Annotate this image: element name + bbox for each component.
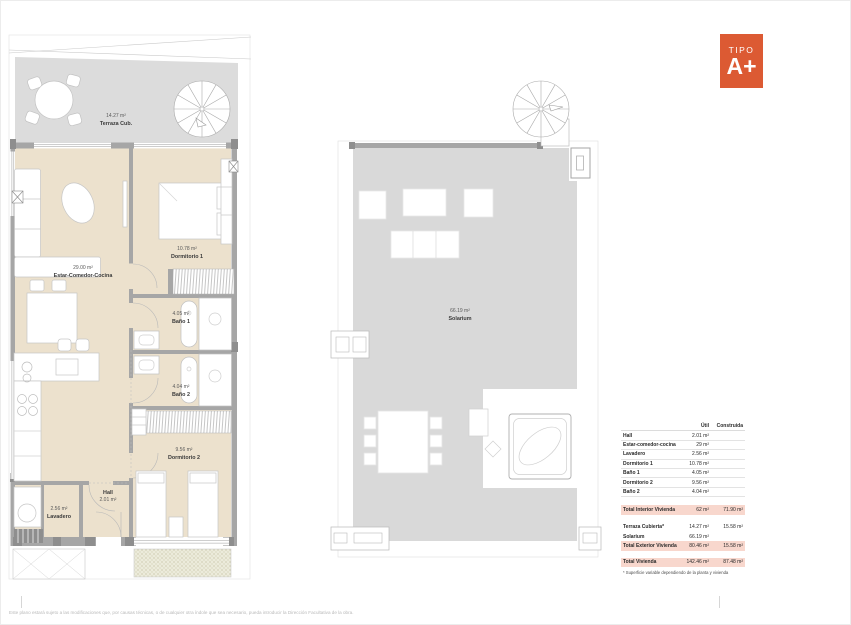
solarium-dining xyxy=(364,411,442,473)
sofa xyxy=(15,169,41,257)
spiral-staircase-icon xyxy=(513,81,569,146)
lavadero-area-label: 2.56 m² xyxy=(51,506,68,512)
roof-line xyxy=(9,37,251,53)
pillar xyxy=(349,142,355,149)
type-badge: TIPO A+ xyxy=(720,34,763,88)
table xyxy=(378,411,428,473)
table-footnote: * Superficie variable dependiendo de la … xyxy=(621,570,745,575)
table-row-hall: Hall 2.01 m² xyxy=(621,431,745,440)
footer-disclaimer: Este plano estará sujeto a las modificac… xyxy=(9,610,849,615)
pergola xyxy=(13,549,85,579)
dorm2-name-label: Dormitorio 2 xyxy=(168,455,200,461)
washbasin xyxy=(134,331,159,349)
table-row-solarium: Solarium 66.19 m² xyxy=(621,532,745,541)
stool xyxy=(469,409,488,436)
bottom-exterior xyxy=(13,549,231,579)
row-util: 2.56 m² xyxy=(677,451,709,457)
row-label: Dormitorio 2 xyxy=(623,480,677,486)
row-construida: 15.58 m² xyxy=(709,543,743,549)
estar-name-label: Estar-Comedor-Cocina xyxy=(54,273,114,279)
chair xyxy=(364,453,376,465)
roof-line xyxy=(9,50,251,59)
row-util: 62 m² xyxy=(677,507,709,513)
row-label: Hall xyxy=(623,433,677,439)
dining-table xyxy=(27,293,77,343)
row-label: Estar-comedor-cocina xyxy=(623,442,677,448)
chair xyxy=(430,453,442,465)
lounger xyxy=(403,189,446,216)
row-util: 14.27 m² xyxy=(677,524,709,530)
row-util: 142.46 m² xyxy=(677,559,709,565)
row-label: Total Exterior Vivienda xyxy=(623,543,677,549)
pillow xyxy=(190,473,216,483)
bano2-name-label: Baño 2 xyxy=(172,392,190,398)
window-marker xyxy=(331,331,369,358)
row-label: Total Interior Vivienda xyxy=(623,507,677,513)
chair xyxy=(52,280,66,291)
solarium-name-label: Solarium xyxy=(448,316,471,322)
row-util: 29 m² xyxy=(677,442,709,448)
dorm2-area-label: 9.56 m² xyxy=(176,447,193,453)
row-label: Dormitorio 1 xyxy=(623,461,677,467)
row-util: 10.78 m² xyxy=(677,461,709,467)
table-row-lavadero: Lavadero 2.56 m² xyxy=(621,450,745,459)
bano2-area-label: 4.04 m² xyxy=(173,384,190,390)
lounger xyxy=(464,189,493,217)
table-row-bano1: Baño 1 4.05 m² xyxy=(621,469,745,478)
terraza-area-label: 14.27 m² xyxy=(106,113,126,119)
bano1-name-label: Baño 1 xyxy=(172,319,190,325)
chair xyxy=(430,435,442,447)
wall xyxy=(353,143,541,148)
total-interior-row: Total Interior Vivienda 62 m² 71.90 m² xyxy=(621,505,745,514)
wardrobe-hatch xyxy=(173,269,234,294)
total-exterior-row: Total Exterior Vivienda 80.46 m² 15.58 m… xyxy=(621,541,745,550)
row-util: 80.46 m² xyxy=(677,543,709,549)
total-vivienda-row: Total Vivienda 142.46 m² 87.48 m² xyxy=(621,558,745,567)
table-row-dormitorio2: Dormitorio 2 9.56 m² xyxy=(621,478,745,487)
shower xyxy=(199,354,232,406)
gravel-area xyxy=(134,549,231,577)
hall-name-label: Hall xyxy=(103,490,113,496)
shower xyxy=(199,298,232,350)
pillow xyxy=(138,473,164,483)
bano1-area-label: 4.05 m² xyxy=(173,311,190,317)
table-row-dormitorio1: Dormitorio 1 10.78 m² xyxy=(621,460,745,469)
floor-plan-sheet: 14.27 m² Terraza Cub. 29.00 m² Estar-Com… xyxy=(0,0,851,625)
cabinet xyxy=(14,487,41,527)
chair xyxy=(30,280,44,291)
estar-area-label: 29.00 m² xyxy=(73,265,93,271)
vent-box xyxy=(571,148,590,178)
solarium-area-label: 66.19 m² xyxy=(450,308,470,314)
hall-area-label: 2.01 m² xyxy=(100,497,117,503)
nightstand xyxy=(169,517,183,537)
wardrobe-hatch xyxy=(146,411,231,433)
row-util: 4.05 m² xyxy=(677,470,709,476)
row-label: Solarium xyxy=(623,534,677,540)
chair xyxy=(430,417,442,429)
terraza-name-label: Terraza Cub. xyxy=(100,121,133,127)
row-construida: 87.48 m² xyxy=(709,559,743,565)
dorm1-area-label: 10.78 m² xyxy=(177,246,197,252)
dorm1-name-label: Dormitorio 1 xyxy=(171,254,203,260)
table-row-bano2: Baño 2 4.04 m² xyxy=(621,488,745,497)
tv-unit xyxy=(123,181,127,227)
row-util: 66.19 m² xyxy=(677,534,709,540)
row-util: 4.04 m² xyxy=(677,489,709,495)
row-label: Baño 2 xyxy=(623,489,677,495)
col-header-util: Útil xyxy=(677,423,709,429)
jacuzzi xyxy=(509,414,571,479)
crop-mark xyxy=(719,596,720,608)
left-floor-plan: 14.27 m² Terraza Cub. 29.00 m² Estar-Com… xyxy=(9,35,251,579)
washbasin xyxy=(134,356,159,374)
lounger xyxy=(359,191,386,219)
area-summary-table: Útil Construida Hall 2.01 m² Estar-comed… xyxy=(621,422,745,575)
table-header-row: Útil Construida xyxy=(621,422,745,431)
col-header-construida: Construida xyxy=(709,423,743,429)
right-floor-plan: 66.19 m² Solarium xyxy=(331,81,601,557)
table-row-estar: Estar-comedor-cocina 29 m² xyxy=(621,441,745,450)
row-label: Baño 1 xyxy=(623,470,677,476)
row-label: Total Vivienda xyxy=(623,559,677,565)
laundry-fixtures xyxy=(14,487,43,543)
row-util: 9.56 m² xyxy=(677,480,709,486)
row-construida: 15.58 m² xyxy=(709,524,743,530)
bar-stool xyxy=(76,339,89,351)
bar-stool xyxy=(58,339,71,351)
jacuzzi-area xyxy=(469,389,577,488)
chair xyxy=(364,435,376,447)
cooktop xyxy=(56,359,78,375)
row-label: Lavadero xyxy=(623,451,677,457)
chair xyxy=(364,417,376,429)
lavadero-name-label: Lavadero xyxy=(47,514,72,520)
spiral-staircase-icon xyxy=(174,81,230,137)
row-construida: 71.90 m² xyxy=(709,507,743,513)
row-util: 2.01 m² xyxy=(677,433,709,439)
table-row-terraza: Terraza Cubierta* 14.27 m² 15.58 m² xyxy=(621,523,745,532)
outdoor-sofa xyxy=(391,231,459,258)
wall-stub xyxy=(168,269,173,294)
type-badge-grade: A+ xyxy=(726,56,756,77)
row-label: Terraza Cubierta* xyxy=(623,524,677,530)
shelf xyxy=(132,409,146,435)
crop-mark xyxy=(21,596,22,608)
